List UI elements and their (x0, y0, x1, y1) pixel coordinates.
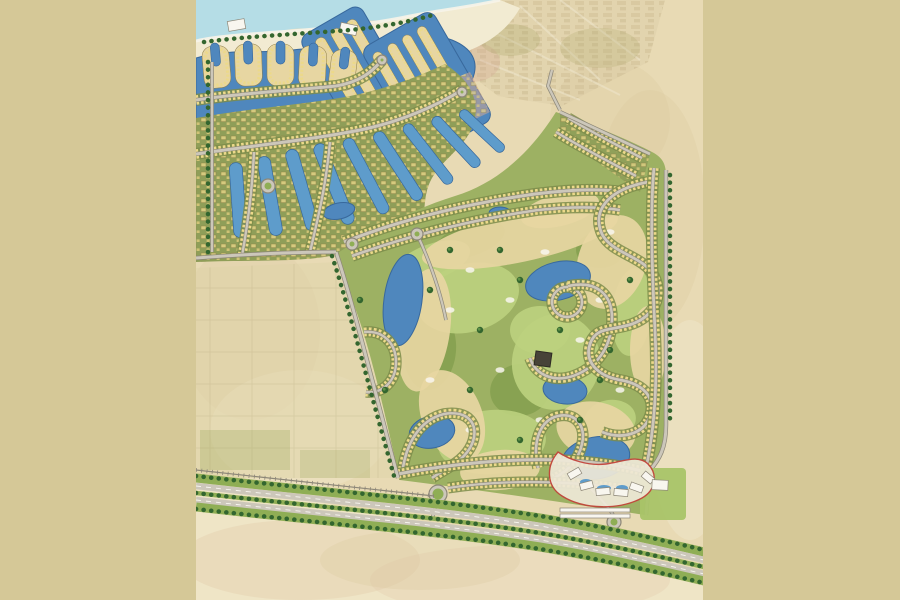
bunker-speck (446, 307, 455, 313)
tree-highlight (518, 278, 521, 281)
tree-highlight (383, 388, 386, 391)
finger-water-pocket (308, 43, 318, 67)
letterbox-left (0, 0, 196, 600)
bunker-speck (496, 367, 505, 373)
roundabout-island (265, 183, 272, 190)
letterbox-right (703, 0, 900, 600)
roundabout-island (433, 489, 444, 500)
tree-highlight (358, 298, 361, 301)
roundabout-island (381, 59, 384, 62)
bunker-speck (466, 267, 475, 273)
bunker-speck (506, 297, 515, 303)
building (560, 514, 630, 518)
bunker-speck (576, 337, 585, 343)
tree-highlight (498, 248, 501, 251)
tree-highlight (558, 328, 561, 331)
building (652, 480, 669, 491)
bunker-speck (426, 377, 435, 383)
finger-water-pocket (276, 41, 285, 64)
building (596, 487, 611, 495)
field-patch (200, 430, 290, 470)
bunker-speck (541, 249, 550, 255)
building (560, 508, 630, 512)
roundabout-island (461, 91, 464, 94)
tree-highlight (478, 328, 481, 331)
tree-highlight (428, 288, 431, 291)
roundabout-island (350, 242, 355, 247)
tree-highlight (578, 418, 581, 421)
master-plan-map (0, 0, 900, 600)
tree-highlight (518, 438, 521, 441)
field-patch (300, 450, 370, 478)
peninsula-finger (267, 41, 294, 86)
tree-highlight (628, 278, 631, 281)
tree-highlight (608, 348, 611, 351)
bunker-speck (616, 387, 625, 393)
building (614, 488, 629, 496)
roundabout-island (415, 232, 420, 237)
tree-highlight (468, 388, 471, 391)
roundabout-island (611, 519, 618, 526)
finger-water-pocket (243, 41, 253, 64)
master-plan-screenshot (0, 0, 900, 600)
peninsula-finger (234, 41, 263, 87)
clubhouse (534, 351, 552, 367)
tree-highlight (448, 248, 451, 251)
tree-highlight (598, 378, 601, 381)
